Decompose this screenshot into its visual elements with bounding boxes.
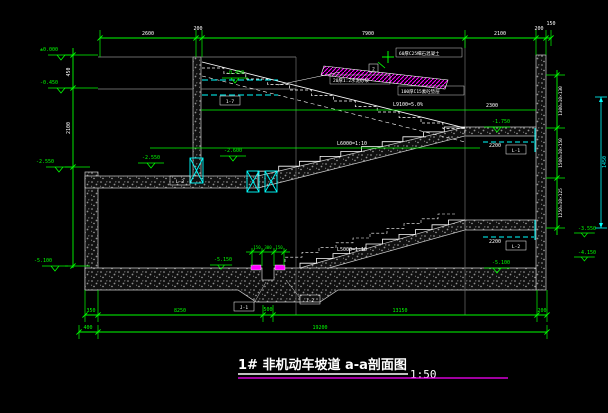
finish-note-bottom: 100厚C15素砼垫层	[401, 88, 440, 95]
drain-dim-1: 300	[264, 245, 272, 250]
ramp-finish-layers	[321, 66, 448, 89]
top-dim-4: 200	[534, 26, 543, 32]
elevation-right-upper: -3.550	[578, 226, 596, 232]
left-dim-0: 450	[66, 67, 72, 76]
bottom2-dim-1: 19200	[312, 325, 327, 331]
level-width-label: 2300	[486, 103, 498, 109]
elevation-right-lower: -4.150	[578, 250, 596, 256]
top-dim-1: 200	[193, 26, 202, 32]
bottom-dimension-row2: 400 19200	[76, 325, 549, 339]
elevation-entry: -0.450	[40, 80, 58, 86]
top-dim-3: 2100	[494, 31, 506, 37]
ramp-slab-lower	[300, 220, 465, 276]
right-dim-0: 1300=10×130	[558, 86, 564, 116]
top-dim-5: 150	[546, 21, 555, 27]
bottom1-dim-2: 500	[263, 307, 272, 313]
finish-note-top: 60厚C25细石混凝土	[399, 50, 440, 57]
elevation-pit: -5.150	[214, 257, 232, 263]
drain-dim-2: 150	[275, 245, 283, 250]
leader-line	[278, 72, 340, 85]
tag-beam-lower: L-2	[512, 244, 520, 250]
left-dim-1: 2100	[66, 122, 72, 134]
ramp-slab-upper	[258, 127, 465, 188]
upper-opening-dim: 2200	[489, 143, 501, 149]
concrete-structure	[85, 55, 546, 302]
drawing-title: 1# 非机动车坡道 a-a剖面图	[238, 357, 407, 373]
upper-landing-slab	[465, 127, 536, 136]
drain-dim-0: 150	[253, 245, 261, 250]
bottom2-dim-0: 400	[83, 325, 92, 331]
bottom1-dim-0: 350	[86, 308, 95, 314]
slope-label-run3: L5000=1:10	[337, 247, 367, 253]
base-slab-with-sump	[85, 268, 536, 302]
tag-opening: 1-7	[226, 99, 234, 105]
tag-beam-slab: L-3	[176, 179, 184, 185]
bottom1-dim-4: 200	[537, 308, 546, 314]
finish-note-mid: 20厚1:2水泥砂浆	[333, 77, 370, 84]
top-dimension-chain: 2600 200 7900 2100 200 150	[97, 21, 555, 57]
right-dimension-chain: 1300=10×130 1500=10×150 1250=10×125 1450…	[546, 70, 608, 261]
elevation-slab-b: -2.600	[224, 148, 242, 154]
section-drawing: 60厚C25细石混凝土 20厚1:2水泥砂浆 100厚C15素砼垫层 2 150…	[0, 0, 608, 413]
tag-sump-left: J-1	[240, 305, 248, 311]
elevation-left-mid: -2.550	[36, 159, 54, 165]
elevation-floor-right: -5.100	[492, 260, 510, 266]
right-dim-2: 1250=10×125	[558, 188, 564, 218]
slope-label-run1: L9100=5.0%	[393, 102, 423, 108]
right-wall	[536, 55, 546, 290]
detail-leader	[378, 62, 385, 68]
lower-opening-dim: 2200	[489, 239, 501, 245]
elevation-ramp-start: -0.450	[226, 70, 244, 76]
elevation-ground: ±0.000	[40, 47, 58, 53]
bottom1-dim-3: 13150	[392, 308, 407, 314]
detail-number: 2	[372, 67, 375, 73]
elevation-slab-a: -2.550	[142, 155, 160, 161]
mid-level-slab	[85, 176, 258, 188]
cyan-dim-label: 1450	[602, 156, 608, 168]
elevation-landing-upper: -1.750	[492, 119, 510, 125]
right-dim-1: 1500=10×150	[558, 138, 564, 168]
elevation-floor-left: -5.100	[34, 258, 52, 264]
lower-landing-slab	[465, 220, 536, 230]
top-dim-2: 7900	[362, 31, 374, 37]
drawing-scale: 1:50	[410, 368, 437, 381]
grating-left	[251, 265, 261, 270]
bottom1-dim-1: 8250	[174, 308, 186, 314]
cad-canvas: 60厚C25细石混凝土 20厚1:2水泥砂浆 100厚C15素砼垫层 2 150…	[0, 0, 608, 413]
top-dim-0: 2600	[142, 31, 154, 37]
tag-beam-upper: L-1	[512, 148, 520, 154]
title-block: 1# 非机动车坡道 a-a剖面图 1:50	[238, 357, 508, 381]
tag-sump-right: J-2	[306, 298, 314, 304]
grating-right	[275, 265, 285, 270]
slope-label-run2: L6000=1:10	[337, 141, 367, 147]
